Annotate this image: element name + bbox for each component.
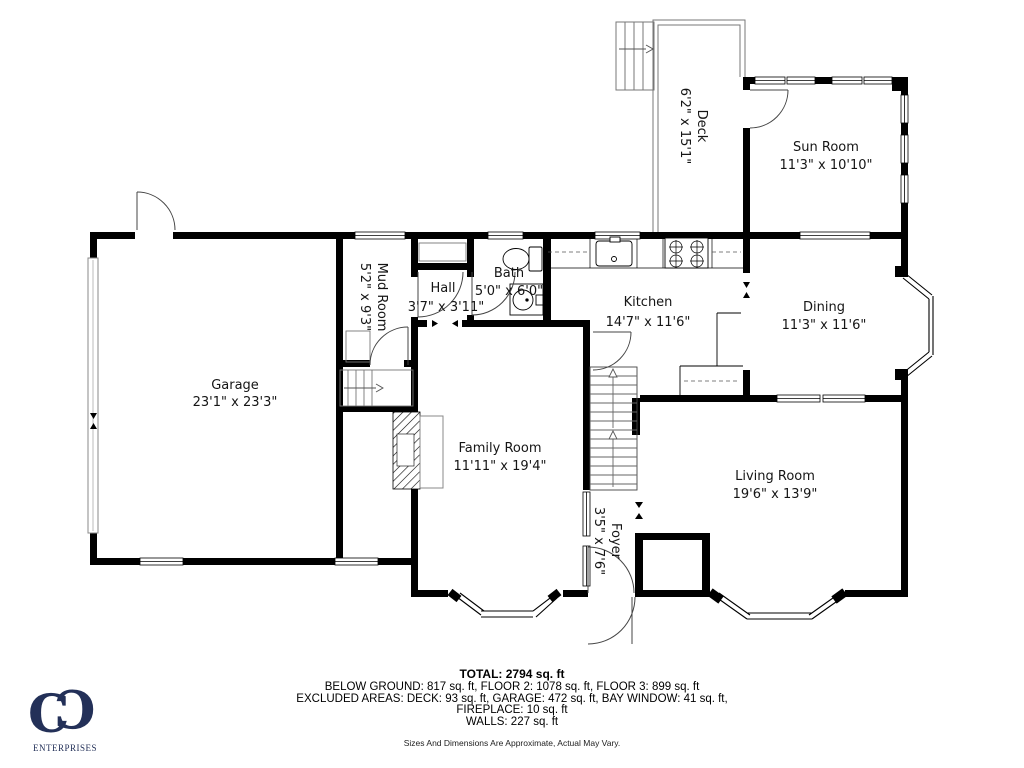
room-label-kitchen: Kitchen (624, 295, 673, 310)
floor-plan-page: Garage 23'1" x 23'3" Sun Room 11'3" x 10… (0, 0, 1024, 768)
cased-opening (777, 395, 820, 402)
window (488, 232, 523, 239)
room-label-bath: Bath (494, 266, 524, 281)
hall-closet-shelf (419, 243, 466, 261)
bay-window-family (450, 592, 559, 617)
door-arc-sunroom (750, 90, 788, 128)
walls (90, 77, 908, 597)
hearth (420, 416, 443, 488)
room-dims-mud-room: 5'2" x 9'3" (357, 263, 372, 331)
company-logo: C C ENTERPRISES (22, 680, 108, 753)
room-dims-hall: 3'7" x 3'11" (408, 300, 484, 315)
mudroom-bench (346, 331, 370, 362)
room-label-family-room: Family Room (459, 441, 542, 456)
room-dims-sun-room: 11'3" x 10'10" (780, 158, 873, 173)
window (355, 232, 405, 239)
window (901, 135, 908, 163)
window (901, 175, 908, 203)
window (787, 77, 815, 84)
bay-window-living (710, 592, 845, 619)
bay-window-dining (903, 274, 933, 377)
stove-fixture (665, 238, 708, 268)
room-dims-deck: 6'2" x 15'1" (677, 88, 692, 164)
door-arc-mudroom (370, 327, 408, 365)
walls-area-text: WALLS: 227 sq. ft (0, 717, 1024, 729)
door-arc-garage-entry (137, 192, 175, 230)
room-label-dining: Dining (803, 300, 845, 315)
room-label-sun-room: Sun Room (793, 140, 859, 155)
room-dims-garage: 23'1" x 23'3" (193, 395, 278, 410)
room-dims-living-room: 19'6" x 13'9" (733, 487, 818, 502)
room-dims-bath: 5'0" x 6'0" (475, 284, 543, 299)
cased-opening (800, 232, 870, 239)
room-label-foyer: Foyer (608, 523, 623, 560)
door-arc-stairs (593, 332, 631, 370)
door-arc-front-outer (588, 597, 635, 644)
floor-areas-text: BELOW GROUND: 817 sq. ft, FLOOR 2: 1078 … (0, 682, 1024, 694)
sidelight-window (583, 546, 590, 586)
area-summary: TOTAL: 2794 sq. ft BELOW GROUND: 817 sq.… (0, 669, 1024, 750)
logo-letter-c-right: C (54, 681, 95, 733)
room-label-hall: Hall (431, 281, 456, 296)
room-label-living-room: Living Room (735, 469, 815, 484)
room-dims-dining: 11'3" x 11'6" (782, 318, 867, 333)
stairs-main (590, 367, 637, 490)
window (140, 558, 183, 565)
garage-door (88, 258, 98, 533)
window (832, 77, 862, 84)
room-dims-foyer: 3'5" x 7'6" (591, 507, 606, 575)
floor-plan-drawing: Garage 23'1" x 23'3" Sun Room 11'3" x 10… (0, 0, 1024, 768)
room-label-mud-room: Mud Room (374, 263, 389, 332)
room-label-garage: Garage (211, 378, 259, 393)
cased-opening (823, 395, 865, 402)
window (335, 558, 378, 565)
stairs-basement (340, 370, 413, 406)
room-dims-family-room: 11'11" x 19'4" (454, 459, 547, 474)
logo-monogram: C C (22, 680, 108, 742)
window (755, 77, 785, 84)
kitchen-sink-fixture (596, 237, 632, 266)
kitchen-counter (548, 239, 743, 268)
room-label-deck: Deck (694, 110, 709, 143)
sidelight-window (583, 492, 590, 536)
total-area-text: TOTAL: 2794 sq. ft (0, 669, 1024, 681)
window (901, 95, 908, 123)
fireplace (393, 412, 443, 489)
deck-stairs (616, 22, 654, 90)
room-dims-kitchen: 14'7" x 11'6" (606, 315, 691, 330)
window (864, 77, 892, 84)
disclaimer-text: Sizes And Dimensions Are Approximate, Ac… (0, 738, 1024, 750)
